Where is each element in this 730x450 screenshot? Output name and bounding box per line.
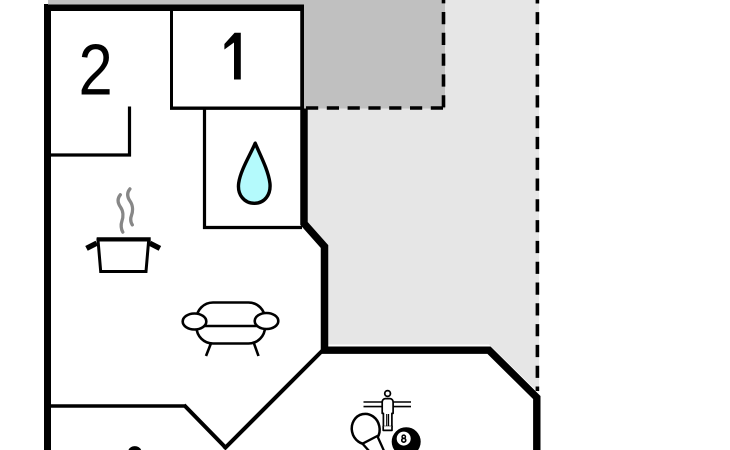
svg-text:2: 2 — [78, 30, 112, 111]
